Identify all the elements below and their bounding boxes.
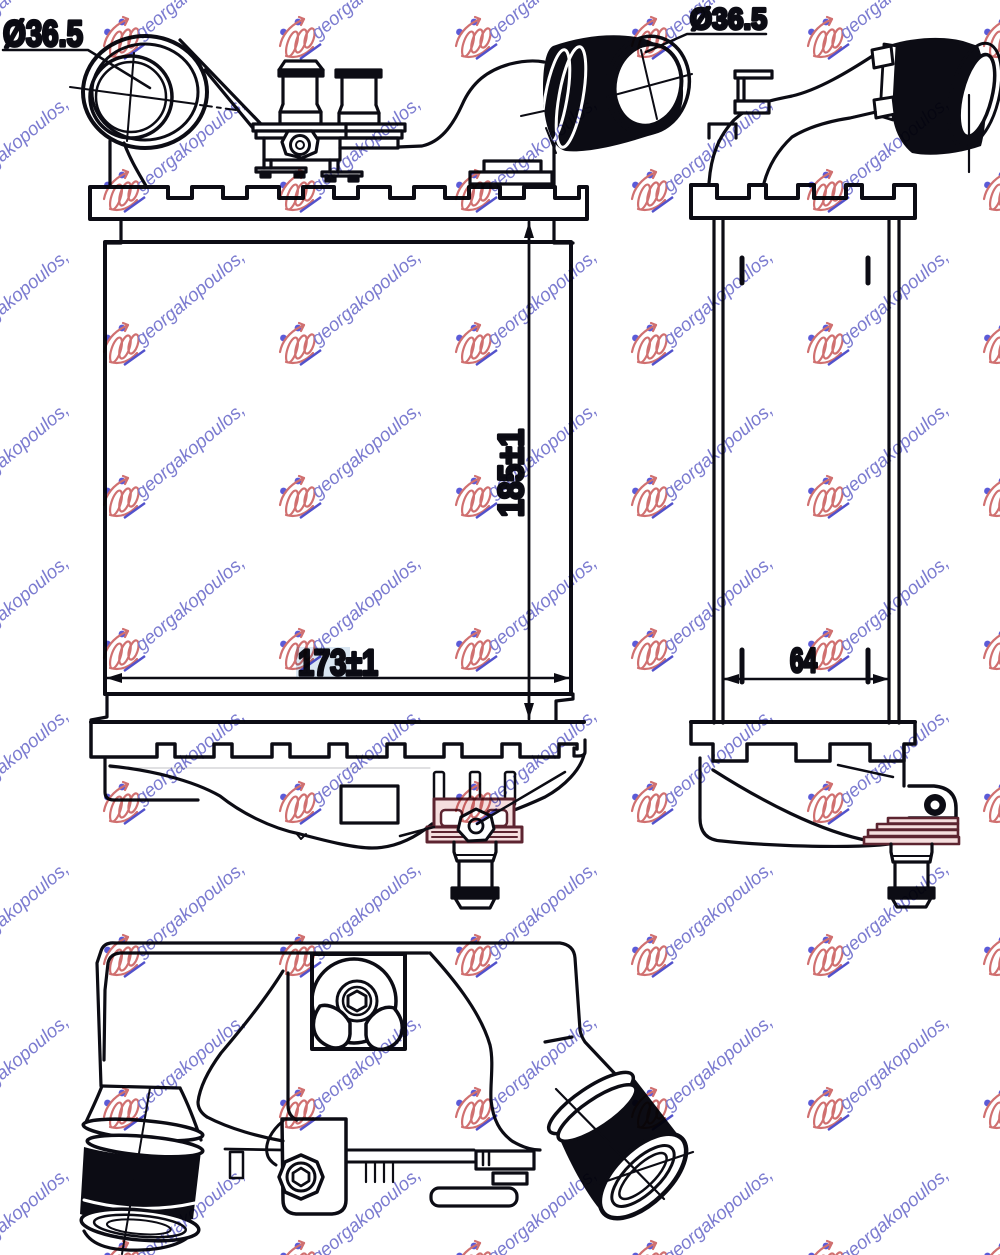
svg-text:Ø36.5: Ø36.5 (3, 13, 83, 54)
svg-text:64: 64 (790, 642, 817, 680)
